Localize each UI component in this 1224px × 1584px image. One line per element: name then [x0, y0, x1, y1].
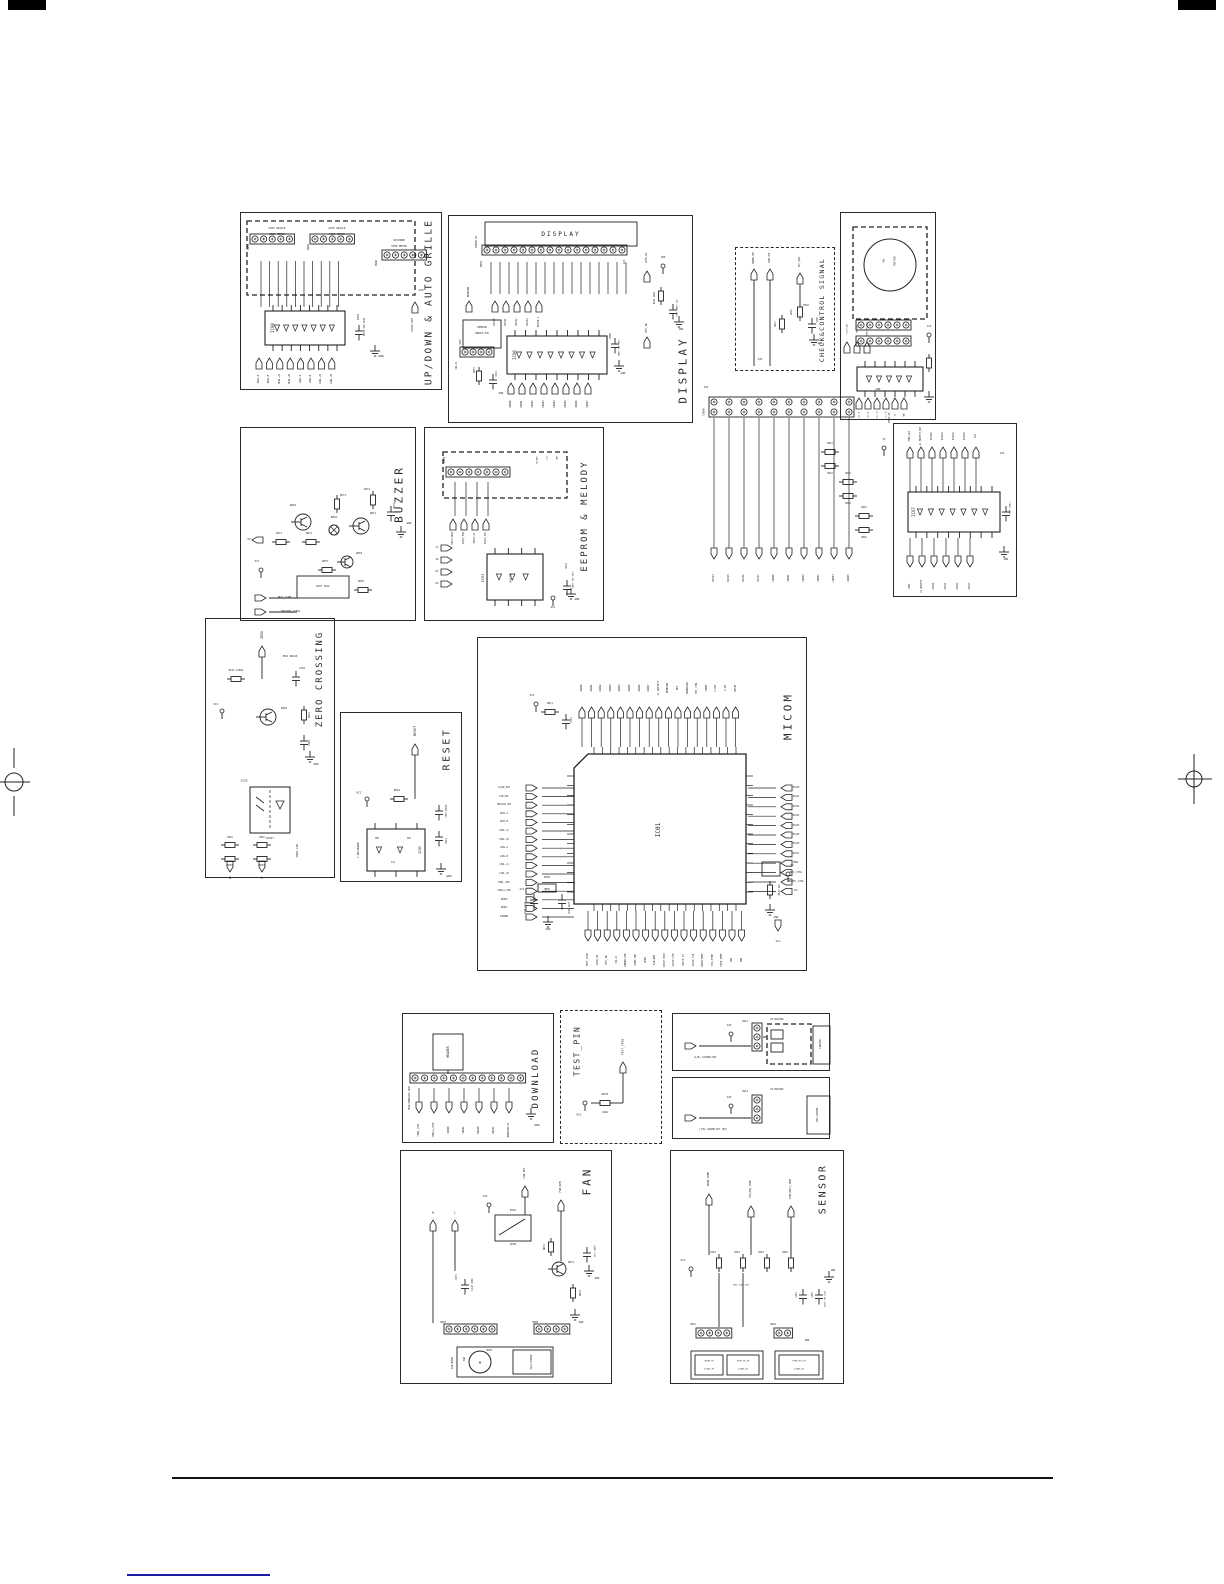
schematic-label: CON1_/SEL — [418, 1124, 420, 1137]
schematic-label: DATA1L — [942, 432, 944, 440]
schematic-label: SRXD1 — [463, 1126, 465, 1133]
schematic-label: CN41 — [690, 1324, 696, 1326]
schematic-label: GRID4 — [554, 400, 556, 407]
schematic-drawing — [241, 213, 441, 389]
schematic-label: LVRL-B — [310, 375, 312, 383]
block-reset: RESET RESETVCCR012C013 100nFC012IC05S-80… — [340, 712, 462, 882]
schematic-label: DATA7 — [758, 574, 760, 581]
schematic-label: GRID2 — [803, 574, 805, 581]
schematic-label: REMOCON-5V — [508, 1123, 510, 1137]
schematic-label: VOICE_SI — [683, 954, 685, 966]
schematic-label: C031 — [566, 563, 568, 569]
schematic-label: GND — [740, 958, 742, 962]
schematic-label: DATA0 — [494, 318, 496, 325]
schematic-label: MELODY_/CTRL — [788, 881, 804, 883]
schematic-label: N — [229, 876, 231, 879]
schematic-label: 100nF 50V 2012 — [618, 340, 620, 357]
schematic-label: L — [261, 876, 263, 879]
schematic-label: GND — [575, 599, 580, 602]
schematic-label: GND — [378, 356, 383, 359]
schematic-label: RESET — [413, 726, 416, 736]
block-buzzer: BUZZER Q016Q017Q018BZ01R071R072R073R074R… — [240, 427, 416, 621]
schematic-label: 12VDC — [509, 1244, 516, 1246]
schematic-label: 100nF 50V 2012 — [364, 318, 366, 337]
schematic-label: VAREF — [706, 684, 708, 691]
schematic-label: VCC — [520, 889, 525, 892]
schematic-label: R072 — [306, 533, 312, 535]
schematic-page: UP/DOWN & AUTO GRILLE AUTO GRILLESTEP MO… — [0, 0, 1224, 1584]
schematic-label: (L/R) LOUVER-OUT — [693, 1057, 716, 1059]
schematic-label: FAN_RPM — [560, 1182, 563, 1193]
schematic-label: STEP MOTOR — [269, 234, 285, 237]
schematic-label: AUTO_SW — [646, 253, 648, 263]
schematic-label: CN06 — [376, 260, 379, 266]
schematic-label: DISPLAY — [541, 231, 580, 237]
schematic-label: GND — [499, 393, 504, 396]
schematic-label: C402 — [812, 1292, 814, 1297]
block-title-display: DISPLAY — [677, 336, 690, 403]
schematic-label: Q016 — [290, 505, 296, 508]
block-updown-auto-grille: UP/DOWN & AUTO GRILLE AUTO GRILLESTEP MO… — [240, 212, 442, 390]
footer-rule — [172, 1477, 1053, 1479]
block-download: DOWNLOAD HEADERMAIN DOWNLOAD CN10GNDCON1… — [402, 1013, 554, 1143]
schematic-label: 100nF 50V 2012 — [572, 572, 574, 589]
schematic-label: HOLD1 — [493, 1126, 495, 1133]
schematic-label: LVRL-/B — [331, 374, 333, 384]
schematic-label: GRID5 — [629, 684, 631, 691]
schematic-label: R402 — [734, 1252, 739, 1254]
registration-mark-left — [0, 748, 34, 818]
schematic-label: AUTO_SW — [596, 955, 598, 965]
schematic-label: DATA6 — [743, 574, 745, 581]
schematic-label: R017 — [775, 321, 777, 326]
schematic-label: CN05 — [308, 244, 311, 250]
schematic-label: DATA3L — [964, 432, 966, 440]
schematic-label: BUZ_/CTRL — [790, 871, 802, 873]
schematic-label: ZERO — [644, 957, 646, 963]
schematic-label: DATA3 — [527, 318, 529, 325]
schematic-label: 10kΩ — [602, 1112, 608, 1114]
schematic-label: AC_PROTECT — [658, 681, 660, 695]
schematic-label: CN11 — [742, 1021, 748, 1023]
schematic-label: C060 — [610, 333, 612, 339]
schematic-label: VCL — [776, 941, 781, 944]
schematic-label: L — [454, 1212, 456, 1215]
schematic-label: GRID6 — [576, 400, 578, 407]
schematic-label: DI — [436, 571, 439, 573]
schematic-label: ZERO — [260, 631, 263, 639]
schematic-label: VDD — [661, 257, 665, 259]
block-sensor: SENSOR ROOM_TEMPEVA(IN)_TEMPPIPE(OUT)_TE… — [670, 1150, 844, 1384]
schematic-label: HLRL-/A — [499, 830, 508, 832]
schematic-label: 12V — [1000, 453, 1004, 455]
schematic-label: R502 — [259, 837, 264, 839]
schematic-label: CON1_/SEL — [498, 881, 510, 883]
schematic-label: SUB — [464, 1357, 466, 1361]
schematic-label: R403 — [758, 1252, 763, 1254]
schematic-label: VCC — [530, 695, 535, 698]
schematic-label: Q501 — [281, 708, 287, 711]
schematic-label: MODULE PCB — [475, 333, 488, 335]
schematic-label: R033 — [602, 1094, 609, 1097]
schematic-label: R512 — [309, 712, 311, 718]
block-fan: FAN FAN_OUTFAN_RPM12VRY0112VDCNLC0711.2µ… — [400, 1150, 612, 1384]
schematic-label: C050 — [358, 314, 361, 320]
schematic-label: HLRL-/A — [279, 374, 281, 384]
schematic-label: GND — [407, 523, 412, 526]
schematic-label: R503 — [227, 865, 232, 867]
schematic-label: R024 — [845, 503, 850, 505]
schematic-label: DO — [436, 583, 439, 585]
schematic-label: R401 — [710, 1252, 715, 1254]
schematic-label: BZ01 — [331, 517, 337, 520]
schematic-label: GND — [595, 1278, 600, 1281]
block-micom: MICOM IC01R011C015VCCX0014MHzC010 22pFC0… — [477, 637, 807, 971]
schematic-label: 1.2µF 450V — [472, 1278, 474, 1291]
schematic-label: GND — [903, 413, 905, 417]
schematic-label: GRID5 — [565, 400, 567, 407]
schematic-label: DATA2 — [516, 318, 518, 325]
schematic-label: VCC — [576, 1114, 581, 1117]
schematic-label: Q018 — [356, 553, 362, 556]
schematic-label: DATA1 — [505, 318, 507, 325]
schematic-label: R026 — [861, 537, 866, 539]
schematic-label: 100nF 50V 2012 — [824, 1291, 826, 1307]
block-zero-crossing: ZERO CROSSING ZEROR511 470kΩC503D501 1N4… — [205, 618, 335, 878]
schematic-label: SW — [883, 259, 886, 263]
schematic-label: 12V — [727, 1097, 732, 1100]
schematic-label: REMOCON — [477, 327, 486, 329]
schematic-label: FAN_RPM — [654, 955, 656, 965]
crop-mark-top-left — [8, 0, 46, 10]
schematic-label: FAN_OUT — [524, 1168, 527, 1179]
schematic-label: HLRL-A — [258, 375, 260, 383]
schematic-label: D501 1N4148 — [283, 656, 298, 658]
schematic-label: R511 470kΩ — [229, 670, 243, 672]
schematic-label: CN09 — [703, 408, 706, 415]
schematic-label: R019 — [791, 309, 793, 314]
schematic-label: CS — [436, 547, 439, 549]
block-title-zero-crossing: ZERO CROSSING — [315, 631, 325, 727]
schematic-drawing — [700, 382, 895, 600]
schematic-label: IC08 — [271, 323, 275, 333]
schematic-label: DATA4 — [713, 574, 715, 581]
schematic-label: C021 — [496, 371, 498, 376]
schematic-label: GRID6 — [638, 684, 640, 691]
schematic-label: R023 — [845, 473, 850, 475]
schematic-label: CN12 — [742, 1091, 748, 1093]
schematic-label: HPS — [677, 686, 679, 690]
schematic-label: CN07 — [440, 1322, 446, 1324]
schematic-label: DATA5 — [793, 834, 800, 836]
block-display: DISPLAY DISPLAYSM6200-16CN01IC06REMOCONR… — [448, 215, 693, 423]
schematic-label: VCC — [356, 792, 361, 795]
schematic-label: HALL-SENSOR — [531, 1355, 533, 1370]
schematic-label: 12V — [727, 1025, 732, 1028]
schematic-label: 03-00254DS — [770, 1089, 783, 1091]
schematic-label: MAIN DOWNLOAD CN10 — [409, 1086, 411, 1110]
schematic-label: C011 22pF — [569, 902, 571, 914]
crop-mark-top-right — [1178, 0, 1216, 10]
schematic-label: R073 — [340, 495, 346, 497]
schematic-label: STEP MOTOR — [391, 246, 407, 249]
schematic-label: AUTO GRILLE — [268, 228, 285, 231]
schematic-label: GND — [818, 343, 823, 346]
schematic-label: 03-00254DS — [770, 1019, 783, 1021]
schematic-label: GND — [313, 764, 318, 767]
schematic-label: DOWNLOAD — [686, 682, 688, 694]
schematic-label: VCC — [255, 561, 260, 564]
schematic-label: MELODY — [536, 456, 538, 463]
schematic-label: VOICE_BUSY — [664, 953, 666, 967]
schematic-label: GND — [1004, 559, 1008, 561]
schematic-label: GRID4 — [833, 574, 835, 581]
schematic-label: GRID0 — [773, 574, 775, 581]
schematic-label: 103AT-2K — [738, 1368, 748, 1370]
schematic-label: GRID0 — [510, 400, 512, 407]
schematic-label: TON/DIS_OUT — [497, 804, 512, 806]
schematic-label: UP/DOWN — [394, 240, 405, 243]
schematic-label: HLRL-/B — [499, 838, 508, 840]
schematic-label: ROOM_TEMP — [708, 1172, 711, 1186]
block-title-reset: RESET — [442, 727, 453, 770]
schematic-label: VOICE_SI — [474, 533, 476, 544]
schematic-label: LVRL-A — [500, 847, 508, 849]
schematic-label: N — [432, 1212, 434, 1215]
schematic-label: GRID7 — [587, 400, 589, 407]
schematic-label: GND — [579, 1322, 584, 1325]
schematic-label: GRID5 — [848, 574, 850, 581]
schematic-label: IC02 — [240, 780, 247, 783]
schematic-label: C071 — [456, 1274, 458, 1280]
schematic-label: 5V — [790, 865, 793, 868]
schematic-label: REMOCON — [468, 287, 470, 297]
schematic-label: R071 — [544, 1244, 546, 1250]
schematic-label: R011 — [547, 703, 553, 705]
schematic-label: PC817 — [266, 838, 274, 841]
schematic-label: FAN_OUT — [499, 795, 508, 797]
schematic-drawing — [478, 638, 806, 970]
schematic-label: R033 — [474, 367, 476, 372]
schematic-label: C033 100nF 16V — [676, 300, 678, 317]
schematic-label: IC07 — [912, 507, 916, 517]
schematic-label: R501 — [227, 837, 232, 839]
schematic-label: HMDL_OUT — [909, 431, 911, 442]
schematic-label: R071 — [276, 533, 282, 535]
block-title-eeprom-melody: EEPROM & MELODY — [580, 460, 590, 571]
schematic-label: RY01 — [510, 1210, 516, 1213]
schematic-label: R077 2012 — [317, 586, 330, 588]
schematic-label: C018 — [817, 317, 819, 322]
schematic-label: ROOM-TH — [705, 1360, 714, 1362]
block-title-sensor: SENSOR — [818, 1164, 829, 1215]
schematic-drawing — [673, 1078, 829, 1138]
schematic-drawing — [673, 1014, 829, 1070]
block-eeprom-melody: EEPROM & MELODY CN03MELODY12VGNDIC0393C4… — [424, 427, 604, 621]
schematic-label: DATA3 — [793, 815, 800, 817]
schematic-label: 470kΩ 1/4W — [297, 844, 299, 857]
schematic-label: R076 — [358, 581, 364, 583]
registration-mark-right — [1178, 748, 1218, 812]
schematic-label: 12V — [758, 359, 763, 362]
block-data-buffer: IC07C007 100nFGND12VHMDL_OUTAC_PROTECT_O… — [893, 423, 1017, 597]
schematic-label: R404 — [782, 1252, 787, 1254]
schematic-label: R035 10kΩ — [654, 292, 656, 304]
schematic-label: DATA7 — [793, 853, 800, 855]
schematic-label: C015 — [571, 717, 573, 722]
schematic-label: HLRL-A — [500, 813, 508, 815]
schematic-label: GRID3 — [818, 574, 820, 581]
schematic-label: IC01 — [655, 823, 661, 837]
schematic-label: R504 — [259, 865, 264, 867]
block-title-fan: FAN — [581, 1167, 594, 1196]
schematic-label: TOP LOUVER — [817, 1108, 819, 1122]
schematic-label: Q071 — [568, 1262, 574, 1265]
schematic-label: DATA0-1 — [538, 317, 540, 327]
schematic-label: HMDL — [909, 583, 911, 588]
schematic-label: R075 — [322, 561, 328, 563]
schematic-label: TXD0D-50 — [889, 413, 891, 424]
schematic-label: D018 — [803, 305, 808, 307]
schematic-label: LVLUP_OUT — [412, 318, 415, 332]
schematic-label: 103AT-2K — [704, 1368, 714, 1370]
schematic-label: LVRL-B — [500, 856, 508, 858]
schematic-label: C013 100nF — [446, 804, 448, 817]
schematic-label: VDD — [731, 958, 733, 962]
schematic-label: GND — [805, 1340, 809, 1342]
schematic-label: R012 — [394, 790, 400, 793]
schematic-label: MOTOR — [894, 256, 897, 265]
schematic-label: GRID7 — [648, 684, 650, 691]
schematic-label: CN42 — [770, 1324, 776, 1326]
schematic-label: OUT — [407, 838, 411, 840]
schematic-label: R025 — [861, 507, 866, 509]
schematic-label: DATA3 — [969, 583, 971, 590]
schematic-label: STROBE — [500, 916, 508, 918]
schematic-label: GRID0 — [581, 684, 583, 691]
schematic-label: BUZ_/CTRL — [278, 597, 292, 600]
schematic-label: PIPE_IN-TH — [737, 1360, 749, 1362]
schematic-label: GND — [446, 876, 451, 879]
schematic-label: 10kΩ 1/8W 2012 — [733, 1284, 750, 1286]
schematic-label: M — [479, 1361, 481, 1365]
schematic-label: GRID2 — [600, 684, 602, 691]
block-title-test-pin: TEST_PIN — [573, 1026, 582, 1077]
schematic-drawing — [425, 428, 603, 620]
schematic-label: C007 100nF — [1009, 502, 1011, 514]
schematic-label: CON(L)/VPP — [497, 890, 510, 892]
schematic-label: X001 — [544, 877, 550, 880]
schematic-label: HOLD0 — [478, 1126, 480, 1133]
schematic-label: CN03 — [444, 457, 447, 464]
schematic-label: MELODY_/CTRL — [282, 611, 301, 614]
schematic-label: CON(L)/VPP — [433, 1123, 435, 1137]
schematic-drawing — [241, 428, 415, 620]
schematic-label: X-IN — [725, 685, 727, 691]
schematic-label: GND — [534, 1125, 539, 1128]
block-louver-option-1: CN1103-00254DS12V(L/R) LOUVER-OUTLOUVER — [672, 1013, 830, 1071]
schematic-label: SRXD0 — [448, 1126, 450, 1133]
schematic-label: 4MHz — [544, 889, 550, 891]
schematic-label: DATA2L — [953, 432, 955, 440]
schematic-label: COMP-CHK — [769, 253, 771, 264]
schematic-label: GND — [831, 1270, 835, 1272]
schematic-label: CN01 — [481, 261, 484, 267]
schematic-label: DATA2 — [957, 583, 959, 590]
schematic-label: DATA5 — [728, 574, 730, 581]
schematic-label: AUTO GRILLE — [328, 228, 345, 231]
schematic-label: VOICE_BUSY — [452, 531, 454, 544]
schematic-label: R013 1kΩ — [779, 885, 781, 896]
schematic-label: DATA1 — [945, 583, 947, 590]
schematic-label: EXT_CTRL — [799, 257, 801, 268]
schematic-label: EXT_CTRL — [696, 682, 698, 694]
schematic-label: GRID3 — [610, 684, 612, 691]
schematic-label: RESET — [734, 684, 736, 691]
schematic-label: SRXD0 — [501, 899, 508, 901]
schematic-label: 12V — [483, 1196, 488, 1199]
schematic-label: AC_PROTECT_OUT — [920, 427, 922, 446]
schematic-label: GRID2 — [532, 400, 534, 407]
schematic-label: DATA0L — [931, 432, 933, 440]
schematic-label: COMP-CHK — [635, 954, 637, 966]
schematic-label: 5V — [247, 539, 250, 542]
schematic-label: LVLUP_OUT — [498, 787, 510, 789]
schematic-label: TEST_/PIN — [587, 954, 589, 967]
block-title-check-control-signal: CHECK&CONTROL SIGNAL — [818, 258, 826, 362]
schematic-label: R022 — [827, 473, 832, 475]
schematic-label: EVA_TEMP — [712, 954, 714, 966]
schematic-label: GND — [556, 456, 558, 460]
block-title-micom: MICOM — [782, 692, 795, 740]
schematic-label: LVLUP_OUT — [846, 324, 848, 335]
schematic-label: SK — [436, 559, 439, 561]
schematic-label: C502 — [309, 740, 311, 746]
schematic-label: C401 — [796, 1292, 798, 1297]
schematic-label: C010 22pF — [525, 902, 527, 914]
schematic-label: ROOM_TEMP — [702, 954, 704, 967]
schematic-label: GRID1 — [788, 574, 790, 581]
schematic-label: VDD — [375, 838, 379, 840]
schematic-label: VOICE_SCK — [485, 532, 487, 544]
schematic-label: LVRL-A — [299, 375, 301, 383]
schematic-label: VOICE_STB — [463, 532, 465, 544]
schematic-label: SM6200-16 — [476, 236, 478, 248]
block-title-download: DOWNLOAD — [531, 1048, 541, 1109]
schematic-label: KEY_IN — [646, 324, 648, 333]
schematic-label: VCC — [213, 704, 218, 707]
schematic-label: GND — [679, 329, 683, 331]
schematic-label: VOICE_SCK — [692, 954, 694, 967]
schematic-label: DATA2 — [793, 806, 800, 808]
schematic-label: TON/DIS_OUT — [866, 322, 868, 335]
schematic-label: GRID1 — [521, 400, 523, 407]
schematic-label: GND — [876, 389, 881, 392]
schematic-label: TEST_/PIN — [622, 1039, 625, 1055]
schematic-label: PIPE(OUT)_TEMP — [790, 1179, 792, 1199]
schematic-label: 5V — [883, 439, 886, 441]
schematic-label: 12V — [704, 387, 709, 390]
schematic-label: LOUVER — [820, 1039, 823, 1048]
schematic-label: FAN-MOTOR — [452, 1357, 454, 1369]
block-interconnect: CN0912VGNDTXD0D-50R021R022R023R024R025R0… — [700, 382, 895, 600]
schematic-label: VCC — [680, 1260, 685, 1263]
schematic-label: 12V — [927, 326, 931, 328]
schematic-label: LVRL-/B — [499, 873, 508, 875]
schematic-label: C072 100nF — [594, 1245, 596, 1257]
schematic-label: C503 — [299, 668, 305, 670]
schematic-label: 12V — [624, 260, 627, 265]
